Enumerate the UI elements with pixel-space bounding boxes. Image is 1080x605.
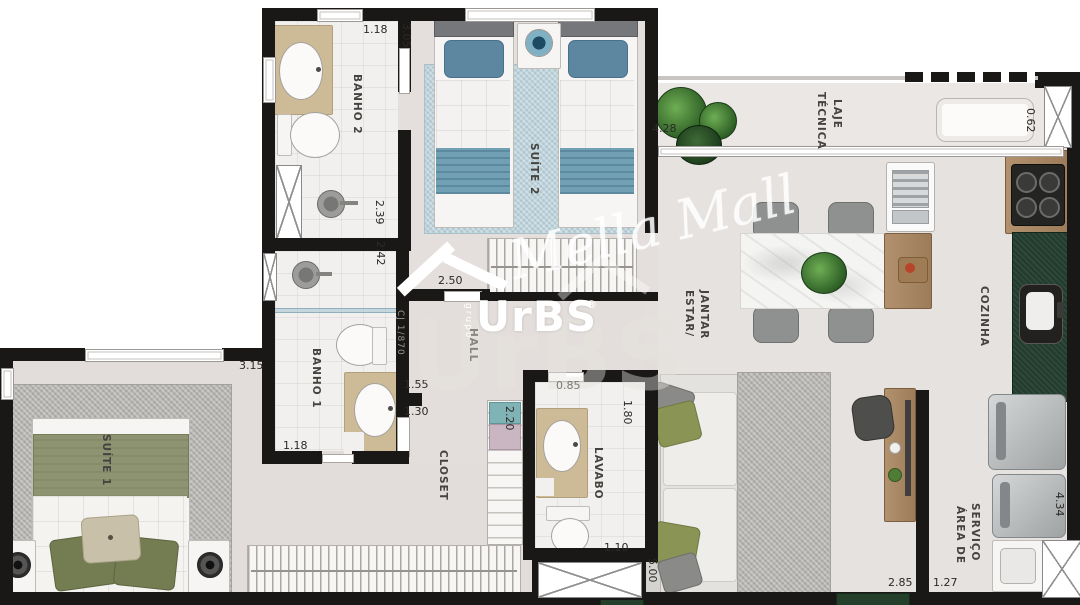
room-label-estar-line2: JANTAR bbox=[698, 290, 710, 339]
meas-banho1-length: 2.42 bbox=[374, 241, 387, 266]
room-label-lavabo: LAVABO bbox=[592, 447, 604, 500]
room-label-cozinha: COZINHA bbox=[978, 286, 990, 347]
desk-laptop bbox=[905, 400, 911, 496]
wall-banho1-bottom-right bbox=[352, 451, 409, 464]
suite1-pillow-button bbox=[108, 535, 113, 540]
suite2-decor-bowl bbox=[525, 29, 553, 57]
twin-bed-2-pillow bbox=[568, 40, 628, 78]
banho2-door-leaf bbox=[399, 48, 410, 94]
meas-servico-depth: 4.34 bbox=[1053, 492, 1066, 517]
twin-bed-2-blanket bbox=[560, 148, 634, 194]
fridge-drawer bbox=[892, 210, 929, 224]
watermark-grupo: grupo bbox=[463, 303, 473, 339]
window-banho2-left bbox=[263, 57, 276, 103]
cooktop-burner-4 bbox=[1039, 197, 1060, 218]
bottom-planter-1 bbox=[836, 593, 910, 605]
wall-banho2-suite2-lower bbox=[398, 130, 411, 240]
banho1-shower-glass bbox=[266, 308, 398, 313]
wall-code-text: CJ 1/870 bbox=[395, 310, 405, 356]
meas-laje-width: 4.28 bbox=[652, 122, 677, 135]
kitchen-sink-basin bbox=[1026, 292, 1054, 330]
room-label-suite2: SUÍTE 2 bbox=[528, 143, 540, 195]
lavabo-shaft-window bbox=[538, 562, 642, 598]
banho2-shower-box bbox=[276, 165, 302, 239]
dining-chair-4 bbox=[828, 306, 874, 343]
banho1-shower-arm bbox=[316, 272, 332, 276]
meas-suite2-depth: 3.05 bbox=[400, 23, 413, 48]
meas-lavabo-width: 1.10 bbox=[604, 541, 629, 554]
floor-plan: BANHO 2 SUÍTE 2 BANHO 1 HALL CLOSET LAVA… bbox=[0, 0, 1080, 605]
room-label-servico-line1: ÁREA DE bbox=[954, 506, 966, 564]
twin-bed-1-pillow bbox=[444, 40, 504, 78]
suite1-lamp-right bbox=[197, 552, 223, 578]
desk-plant bbox=[888, 468, 902, 482]
table-centerpiece-plant bbox=[801, 252, 847, 294]
banho1-faucet bbox=[388, 406, 393, 411]
meas-servico-width: 1.27 bbox=[933, 576, 958, 589]
banho2-toilet-bowl bbox=[290, 112, 340, 158]
twin-bed-1-headboard bbox=[434, 20, 514, 37]
room-label-laje-line1: LAJE bbox=[831, 99, 843, 129]
window-suite2-top bbox=[465, 8, 595, 22]
room-label-servico-line2: SERVIÇO bbox=[969, 503, 981, 562]
window-banho1-left bbox=[263, 253, 277, 301]
lavabo-faucet bbox=[573, 442, 578, 447]
window-suite1-left bbox=[1, 368, 14, 400]
laundry-sink-basin bbox=[1000, 548, 1036, 584]
laje-plant-3 bbox=[676, 125, 722, 165]
room-label-banho2: BANHO 2 bbox=[351, 74, 363, 135]
cutting-board-food bbox=[905, 263, 915, 273]
meas-estar-depth: 5.00 bbox=[646, 558, 659, 583]
room-label-closet: CLOSET bbox=[437, 450, 449, 501]
banho1-toilet-tank bbox=[372, 327, 387, 365]
cooktop-burner-3 bbox=[1016, 197, 1037, 218]
desk-cup bbox=[889, 442, 901, 454]
twin-bed-1-blanket bbox=[436, 148, 510, 194]
dining-chair-3 bbox=[753, 306, 799, 343]
living-rug bbox=[737, 372, 831, 595]
window-banho2-top bbox=[317, 9, 363, 22]
twin-bed-2-quilt bbox=[560, 80, 634, 148]
watermark-brand: UrBS bbox=[476, 296, 597, 338]
shaft-top-right bbox=[1044, 86, 1072, 148]
cooktop-burner-1 bbox=[1016, 172, 1037, 193]
meas-estar-width: 2.85 bbox=[888, 576, 913, 589]
dryer-door bbox=[1000, 482, 1010, 528]
cooktop-burner-2 bbox=[1039, 172, 1060, 193]
window-suite1-top bbox=[85, 349, 224, 362]
wall-banho1-bottom-left bbox=[262, 451, 322, 464]
desk-chair bbox=[850, 393, 896, 442]
window-top-right-dashed bbox=[905, 72, 1035, 82]
window-laje-living bbox=[658, 146, 1064, 157]
laje-bench bbox=[936, 98, 1034, 142]
room-label-suite1: SUÍTE 1 bbox=[100, 434, 112, 486]
twin-bed-1-quilt bbox=[436, 80, 510, 148]
banho2-faucet bbox=[316, 67, 321, 72]
wall-banho-divider bbox=[263, 238, 411, 251]
banho2-shower-arm bbox=[340, 201, 358, 205]
watermark-registered-large: ® bbox=[660, 310, 675, 328]
washer-door bbox=[996, 402, 1006, 460]
watermark-registered: ® bbox=[586, 298, 597, 311]
kitchen-faucet bbox=[1057, 302, 1064, 318]
room-label-laje-line2: TÉCNICA bbox=[815, 92, 827, 150]
twin-bed-2-headboard bbox=[558, 20, 638, 37]
banho1-door-threshold bbox=[322, 454, 354, 463]
meas-laje-side: 0.62 bbox=[1024, 108, 1037, 133]
wall-servico bbox=[916, 390, 929, 592]
meas-banho2-length: 2.39 bbox=[373, 200, 386, 225]
lavabo-counter-notch bbox=[536, 478, 554, 496]
meas-banho2-door: 1.18 bbox=[363, 23, 388, 36]
shaft-bottom-right bbox=[1042, 540, 1080, 598]
suite1-long-wardrobe bbox=[247, 545, 521, 595]
meas-banho1-door: 1.18 bbox=[283, 439, 308, 452]
fridge-shelves bbox=[892, 170, 929, 208]
meas-suite1-window: 3.15 bbox=[239, 359, 264, 372]
roof-logo-icon bbox=[396, 236, 514, 298]
wall-right bbox=[1067, 75, 1080, 605]
room-label-banho1: BANHO 1 bbox=[310, 348, 322, 409]
